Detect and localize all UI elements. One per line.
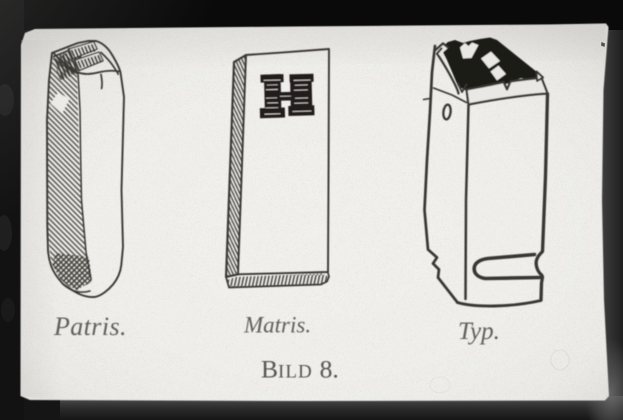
svg-text:Typ.: Typ. xyxy=(458,318,500,345)
svg-text:Matris.: Matris. xyxy=(243,313,311,338)
svg-text:Patris.: Patris. xyxy=(53,312,127,341)
